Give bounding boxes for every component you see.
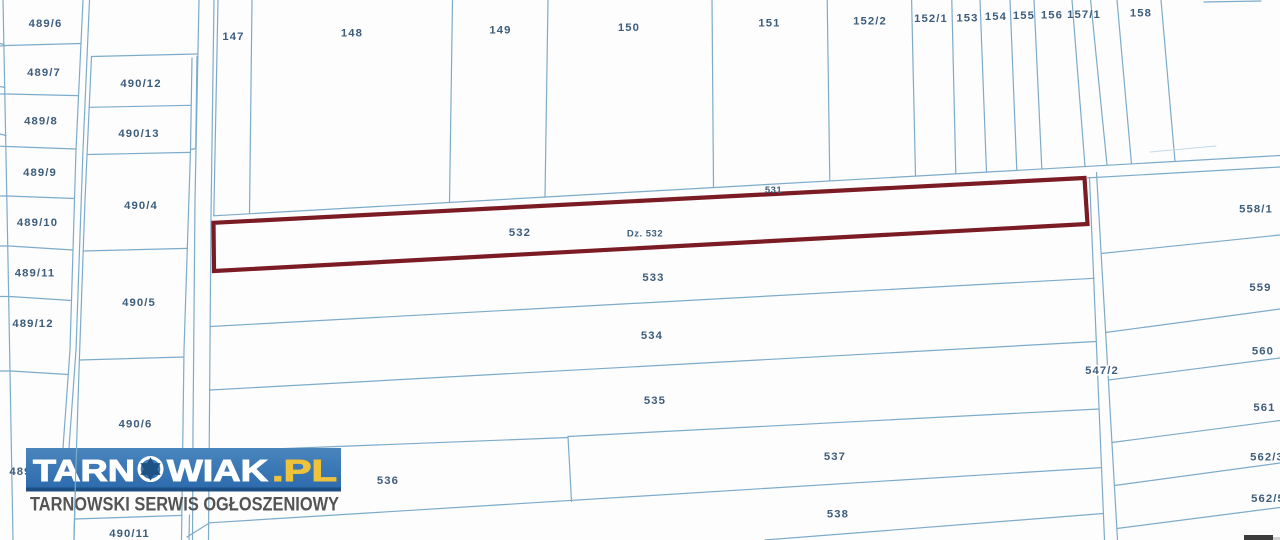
svg-text:156: 156 [1041,10,1063,22]
svg-text:151: 151 [758,18,780,30]
svg-text:490/4: 490/4 [124,200,158,212]
svg-text:560: 560 [1252,346,1274,358]
svg-text:149: 149 [489,25,511,37]
svg-text:531: 531 [765,185,783,196]
svg-text:561: 561 [1253,402,1275,414]
svg-text:TARNOWSKI SERWIS OGŁOSZENIOWY: TARNOWSKI SERWIS OGŁOSZENIOWY [30,495,339,516]
svg-text:152/2: 152/2 [853,16,887,28]
svg-text:489/10: 489/10 [17,217,58,229]
svg-text:490/11: 490/11 [109,528,150,540]
svg-text:157/1: 157/1 [1067,9,1101,21]
svg-text:147: 147 [222,31,244,43]
svg-text:489/11: 489/11 [15,268,56,280]
svg-text:489/8: 489/8 [24,116,58,128]
svg-text:153: 153 [956,13,978,25]
svg-text:Dz. 532: Dz. 532 [627,229,663,240]
svg-text:532: 532 [509,227,531,239]
svg-text:536: 536 [377,475,399,487]
svg-text:490/5: 490/5 [122,297,156,309]
svg-text:148: 148 [341,28,363,40]
svg-text:547/2: 547/2 [1085,365,1119,377]
svg-text:562/5: 562/5 [1251,493,1280,505]
svg-text:538: 538 [827,509,849,521]
svg-text:534: 534 [641,330,663,342]
svg-text:562/3: 562/3 [1250,452,1280,464]
svg-text:490/13: 490/13 [118,128,159,140]
svg-text:490/6: 490/6 [119,419,153,431]
svg-text:489/6: 489/6 [29,18,63,30]
svg-text:533: 533 [642,272,664,284]
svg-text:158: 158 [1130,8,1152,20]
svg-text:152/1: 152/1 [914,13,948,25]
svg-text:154: 154 [985,11,1007,23]
svg-text:490/12: 490/12 [120,78,161,90]
svg-text:489/12: 489/12 [12,318,53,330]
svg-text:.PL: .PL [272,453,337,488]
svg-text:150: 150 [618,22,640,34]
svg-text:489/7: 489/7 [27,67,61,79]
svg-text:537: 537 [824,451,846,463]
svg-text:559: 559 [1249,282,1271,294]
svg-text:535: 535 [644,395,666,407]
svg-text:558/1: 558/1 [1239,204,1273,216]
svg-text:489/9: 489/9 [23,167,57,179]
svg-text:155: 155 [1013,10,1035,22]
svg-text:WIAK: WIAK [167,453,269,488]
svg-text:TARN: TARN [33,453,135,488]
